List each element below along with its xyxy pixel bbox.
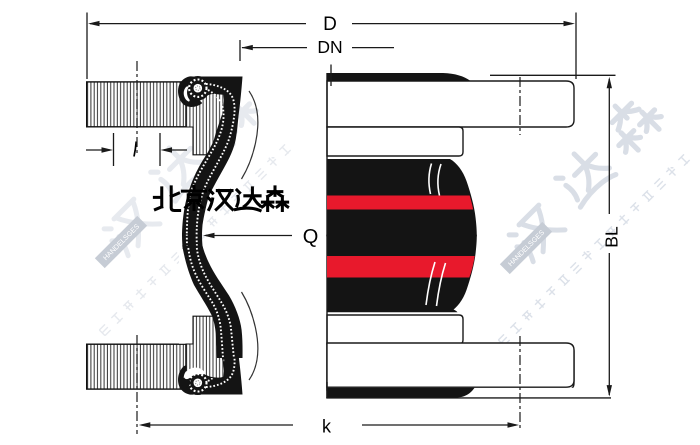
svg-text:BL: BL [601, 226, 621, 248]
svg-text:D: D [323, 14, 337, 35]
svg-text:DN: DN [317, 37, 342, 57]
svg-text:k: k [322, 416, 332, 436]
svg-text:Q: Q [303, 226, 319, 248]
